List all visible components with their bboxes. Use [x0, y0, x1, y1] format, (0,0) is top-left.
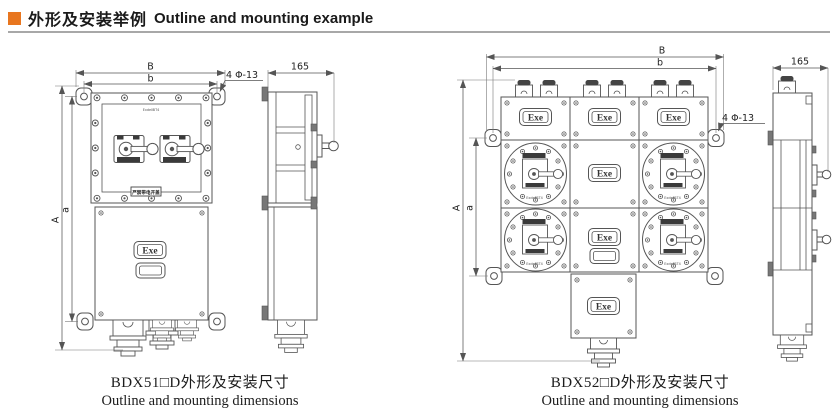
dim-b-label: b — [147, 74, 153, 85]
dim-a-label: a — [465, 205, 476, 211]
bdx52-caption: BDX52□D外形及安装尺寸 Outline and mounting dime… — [500, 371, 780, 410]
bdx52-side-view: 165 — [768, 57, 831, 362]
dim-depth-label: 165 — [291, 62, 309, 73]
bdx51-caption: BDX51□D外形及安装尺寸 Outline and mounting dime… — [60, 371, 340, 410]
technical-drawings: Exe — [0, 0, 838, 413]
dim-holes-label: 4 Φ-13 — [226, 70, 258, 81]
dim-holes-label: 4 Φ-13 — [722, 113, 754, 124]
bdx51-side-view: 165 — [262, 62, 338, 353]
dim-depth-label: 165 — [791, 57, 809, 68]
dim-A-label: A — [452, 204, 463, 211]
dim-B-label: B — [659, 46, 666, 57]
catalog-page: 外形及安装举例 Outline and mounting example Exe — [0, 0, 838, 413]
bdx52-front-view: B b A a 4 Φ-13 — [452, 46, 766, 368]
dim-A-label: A — [51, 216, 62, 223]
warning-plate: 严禁带电开盖 — [131, 187, 161, 196]
bdx51-caption-en: Outline and mounting dimensions — [60, 393, 340, 410]
warning-label: 严禁带电开盖 — [132, 189, 160, 196]
dim-a-label: a — [61, 207, 72, 213]
ex-marking-label: ExdeⅡBT4 — [143, 108, 160, 112]
bdx51-caption-zh: BDX51□D外形及安装尺寸 — [60, 371, 340, 392]
bdx51-front-view: ExdeⅡBT4 严禁带电开盖 B b — [51, 62, 264, 357]
bdx52-caption-en: Outline and mounting dimensions — [500, 393, 780, 410]
dim-B-label: B — [147, 62, 154, 73]
dim-b-label: b — [657, 58, 663, 69]
bdx52-caption-zh: BDX52□D外形及安装尺寸 — [500, 371, 780, 392]
